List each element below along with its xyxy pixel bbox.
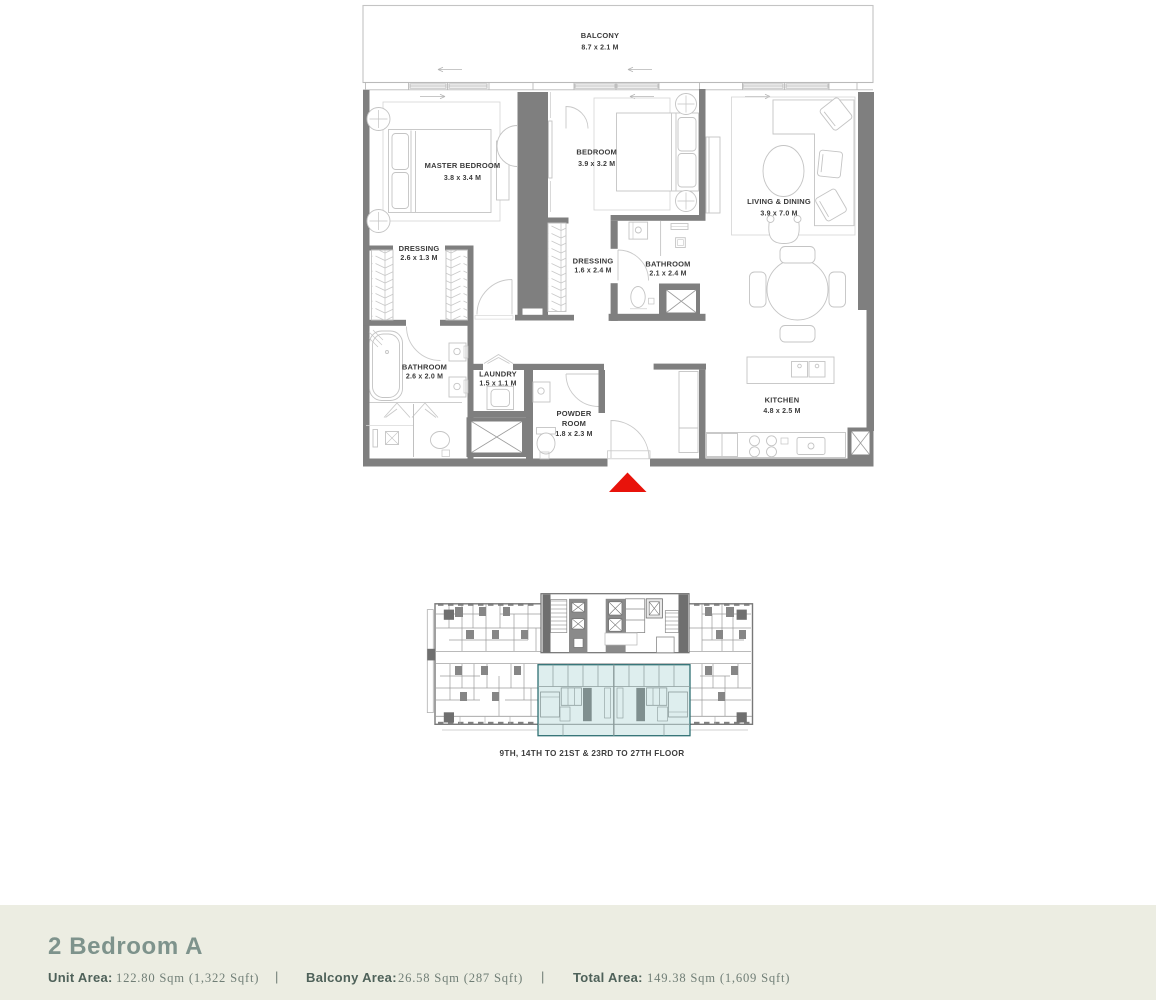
svg-text:1.8 x 2.3 M: 1.8 x 2.3 M: [555, 431, 592, 438]
svg-text:2.6 x 2.0 M: 2.6 x 2.0 M: [406, 374, 443, 381]
svg-text:ROOM: ROOM: [562, 419, 586, 428]
svg-text:|: |: [541, 969, 544, 984]
svg-text:BALCONY: BALCONY: [581, 31, 619, 40]
svg-text:BATHROOM: BATHROOM: [402, 363, 447, 372]
svg-text:122.80 Sqm (1,322 Sqft): 122.80 Sqm (1,322 Sqft): [116, 971, 259, 985]
svg-text:BEDROOM: BEDROOM: [576, 148, 617, 157]
svg-text:MASTER BEDROOM: MASTER BEDROOM: [425, 161, 501, 170]
svg-text:Unit Area:: Unit Area:: [48, 970, 113, 985]
svg-text:3.9 x 7.0 M: 3.9 x 7.0 M: [760, 211, 797, 218]
svg-text:26.58 Sqm (287 Sqft): 26.58 Sqm (287 Sqft): [398, 971, 523, 985]
svg-text:2.1 x 2.4 M: 2.1 x 2.4 M: [649, 271, 686, 278]
svg-text:2 Bedroom A: 2 Bedroom A: [48, 933, 203, 960]
svg-text:3.8 x 3.4 M: 3.8 x 3.4 M: [444, 175, 481, 182]
svg-text:DRESSING: DRESSING: [573, 257, 614, 266]
svg-text:BATHROOM: BATHROOM: [645, 260, 690, 269]
svg-text:2.6 x 1.3 M: 2.6 x 1.3 M: [400, 255, 437, 262]
svg-text:KITCHEN: KITCHEN: [765, 396, 800, 405]
svg-text:LIVING & DINING: LIVING & DINING: [747, 197, 811, 206]
svg-text:Balcony Area:: Balcony Area:: [306, 970, 397, 985]
svg-text:8.7 x 2.1 M: 8.7 x 2.1 M: [581, 45, 618, 52]
svg-text:Total Area:: Total Area:: [573, 970, 643, 985]
svg-text:9TH, 14TH TO 21ST & 23RD TO 27: 9TH, 14TH TO 21ST & 23RD TO 27TH FLOOR: [500, 749, 685, 758]
svg-text:4.8 x 2.5 M: 4.8 x 2.5 M: [763, 408, 800, 415]
svg-text:1.6 x 2.4 M: 1.6 x 2.4 M: [574, 268, 611, 275]
svg-text:POWDER: POWDER: [557, 409, 592, 418]
svg-text:DRESSING: DRESSING: [399, 244, 440, 253]
svg-text:1.5 x 1.1 M: 1.5 x 1.1 M: [479, 381, 516, 388]
svg-text:LAUNDRY: LAUNDRY: [479, 370, 517, 379]
svg-text:3.9 x 3.2 M: 3.9 x 3.2 M: [578, 161, 615, 168]
svg-text:149.38 Sqm (1,609 Sqft): 149.38 Sqm (1,609 Sqft): [647, 971, 790, 985]
svg-text:|: |: [275, 969, 278, 984]
